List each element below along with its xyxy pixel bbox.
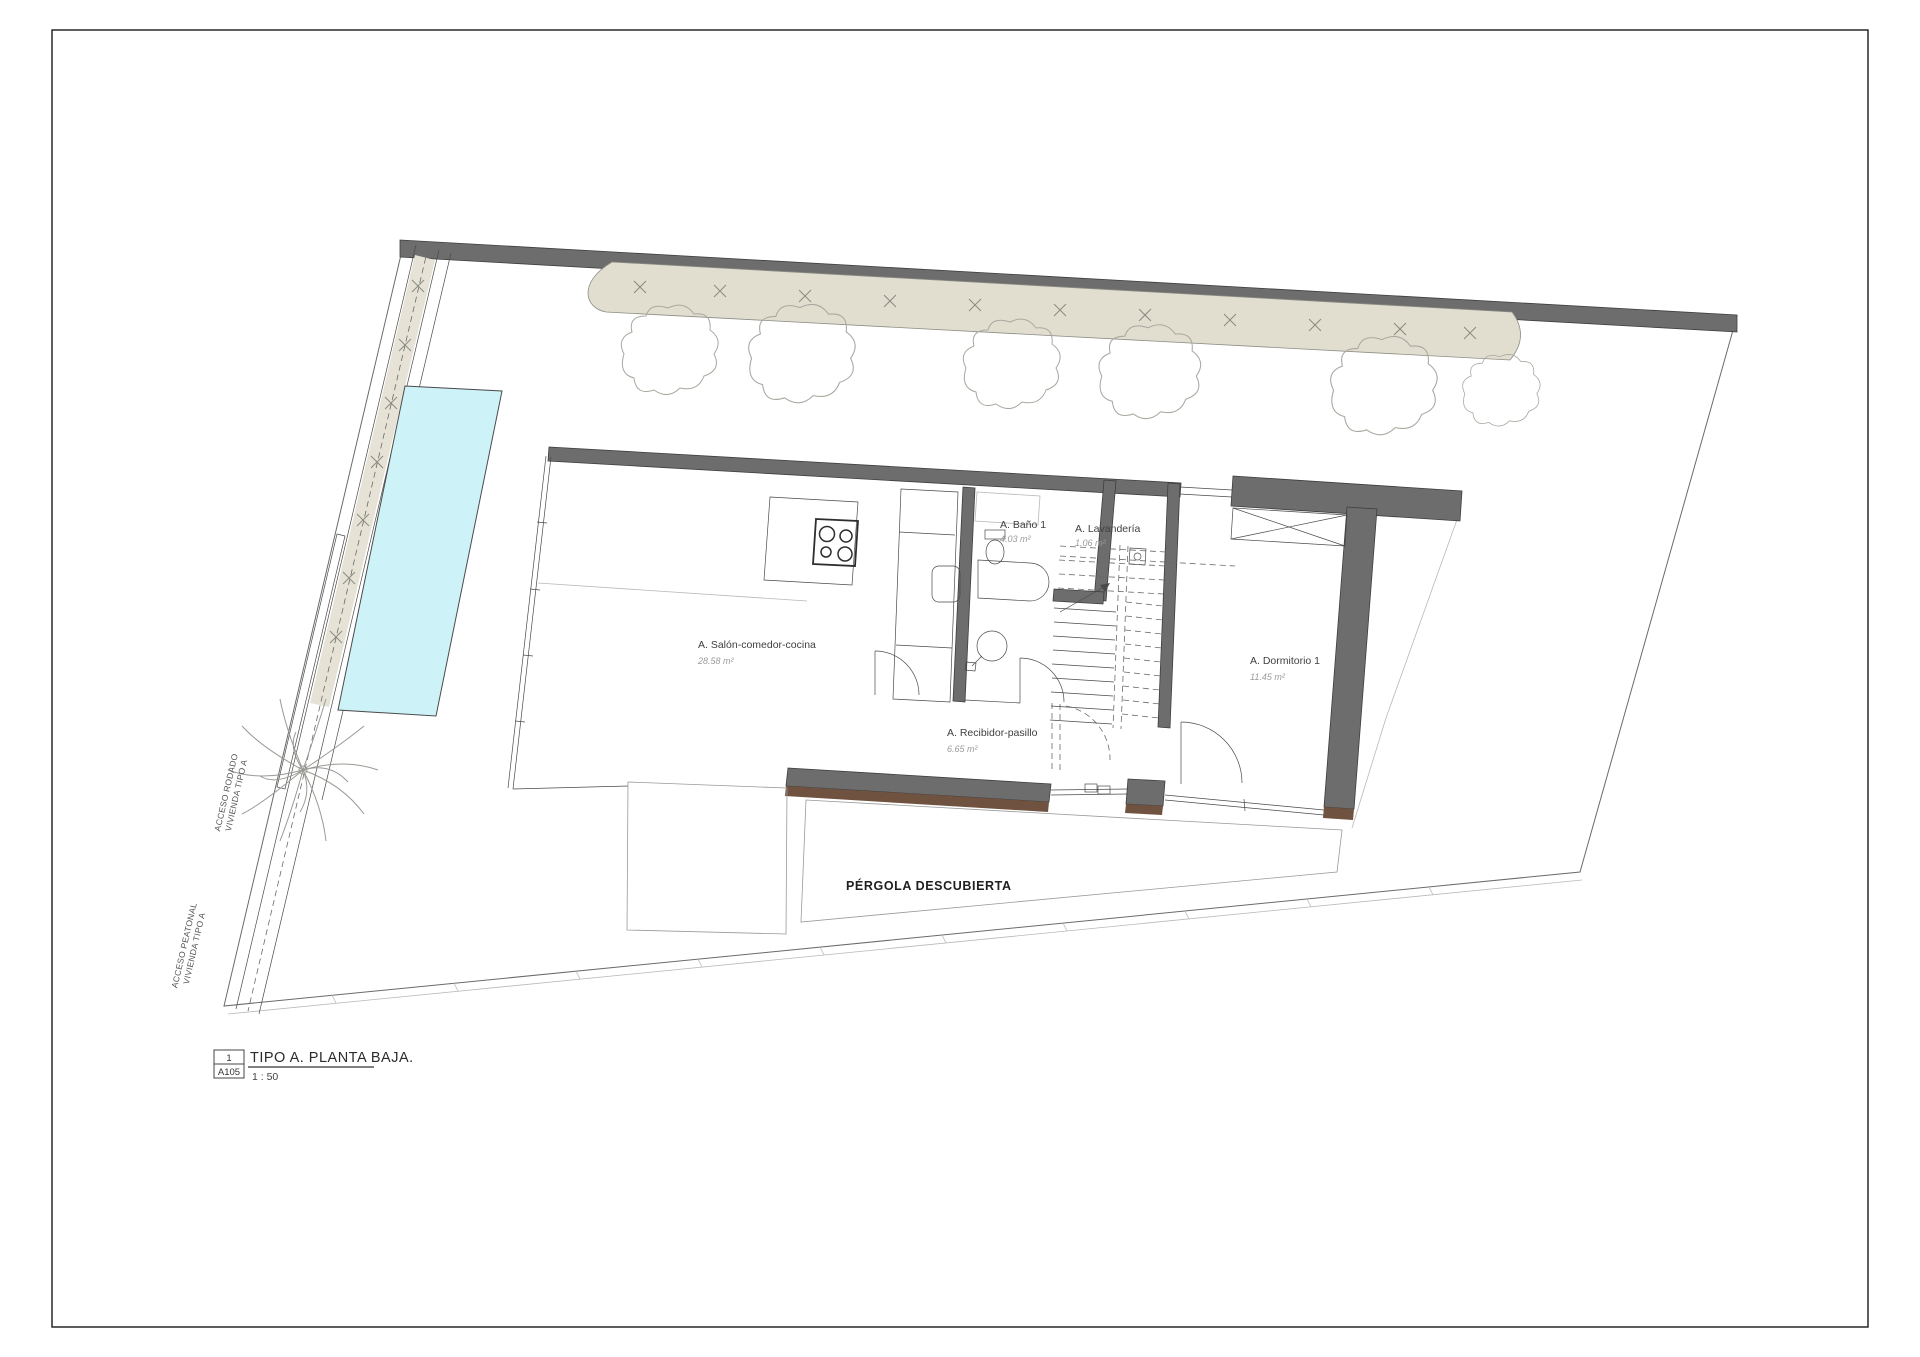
room-area-bedroom: 11.45 m²: [1250, 672, 1286, 682]
floor-plan-canvas: A. Salón-comedor-cocina 28.58 m² A. Baño…: [0, 0, 1920, 1357]
room-area-laundry: 1.06 m²: [1075, 538, 1107, 548]
drawing-scale: 1 : 50: [252, 1071, 278, 1083]
wall-right-deck-cap: [1323, 807, 1354, 820]
drawing-title: TIPO A. PLANTA BAJA.: [250, 1050, 414, 1066]
detail-number: 1: [226, 1053, 231, 1064]
room-label-laundry: A. Lavandería: [1075, 523, 1141, 535]
room-area-hall: 6.65 m²: [947, 744, 979, 754]
room-label-bath: A. Baño 1: [1000, 519, 1046, 531]
room-label-living: A. Salón-comedor-cocina: [698, 639, 816, 651]
room-area-bath: 4.03 m²: [1000, 534, 1032, 544]
room-label-hall: A. Recibidor-pasillo: [947, 727, 1038, 739]
room-label-bedroom: A. Dormitorio 1: [1250, 655, 1320, 667]
wall-entry-pier: [1126, 779, 1165, 806]
pergola-label: PÉRGOLA DESCUBIERTA: [846, 878, 1012, 893]
room-area-living: 28.58 m²: [697, 656, 735, 666]
sheet-number: A105: [218, 1067, 240, 1078]
